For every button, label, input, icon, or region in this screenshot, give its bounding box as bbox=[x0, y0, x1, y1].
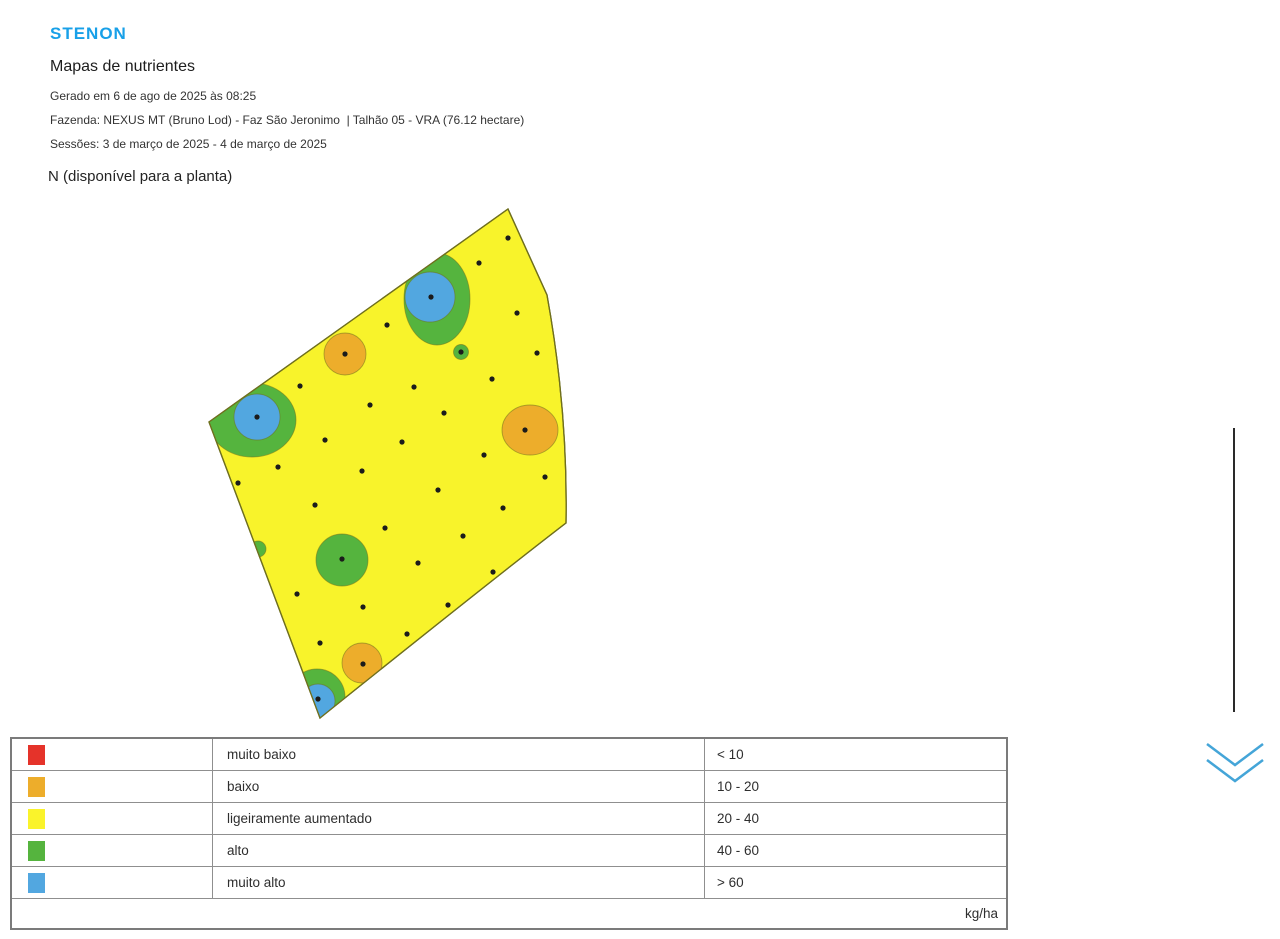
scrollbar[interactable] bbox=[1233, 428, 1235, 712]
scroll-down-icon[interactable] bbox=[1204, 741, 1266, 785]
legend-table: muito baixo < 10 baixo 10 - 20 ligeirame… bbox=[10, 737, 1008, 930]
legend-color-swatch bbox=[28, 841, 45, 861]
legend-row: muito baixo < 10 bbox=[12, 739, 1006, 771]
nutrient-map bbox=[195, 195, 580, 730]
stenon-logo: STENON bbox=[50, 24, 127, 44]
legend-row: muito alto > 60 bbox=[12, 867, 1006, 899]
legend-color-swatch bbox=[28, 809, 45, 829]
legend-label: baixo bbox=[213, 771, 705, 802]
farm-field-line: Fazenda: NEXUS MT (Bruno Lod) - Faz São … bbox=[50, 113, 524, 127]
legend-row: alto 40 - 60 bbox=[12, 835, 1006, 867]
legend-label: alto bbox=[213, 835, 705, 866]
legend-range: 40 - 60 bbox=[705, 835, 1006, 866]
sessions-line: Sessões: 3 de março de 2025 - 4 de março… bbox=[50, 137, 327, 151]
legend-unit: kg/ha bbox=[12, 899, 1006, 928]
page-title: Mapas de nutrientes bbox=[50, 58, 195, 76]
legend-color-swatch bbox=[28, 777, 45, 797]
legend-label: muito baixo bbox=[213, 739, 705, 770]
chevron-down-top bbox=[1207, 744, 1263, 765]
legend-range: 10 - 20 bbox=[705, 771, 1006, 802]
nutrient-map-title: N (disponível para a planta) bbox=[48, 168, 232, 185]
legend-range: > 60 bbox=[705, 867, 1006, 898]
legend-rows: muito baixo < 10 baixo 10 - 20 ligeirame… bbox=[12, 739, 1006, 899]
legend-range: < 10 bbox=[705, 739, 1006, 770]
legend-label: ligeiramente aumentado bbox=[213, 803, 705, 834]
legend-color-swatch bbox=[28, 873, 45, 893]
generated-line: Gerado em 6 de ago de 2025 às 08:25 bbox=[50, 89, 256, 103]
legend-range: 20 - 40 bbox=[705, 803, 1006, 834]
legend-label: muito alto bbox=[213, 867, 705, 898]
chevron-down-bottom bbox=[1207, 760, 1263, 781]
legend-color-swatch bbox=[28, 745, 45, 765]
legend-row: ligeiramente aumentado 20 - 40 bbox=[12, 803, 1006, 835]
legend-row: baixo 10 - 20 bbox=[12, 771, 1006, 803]
